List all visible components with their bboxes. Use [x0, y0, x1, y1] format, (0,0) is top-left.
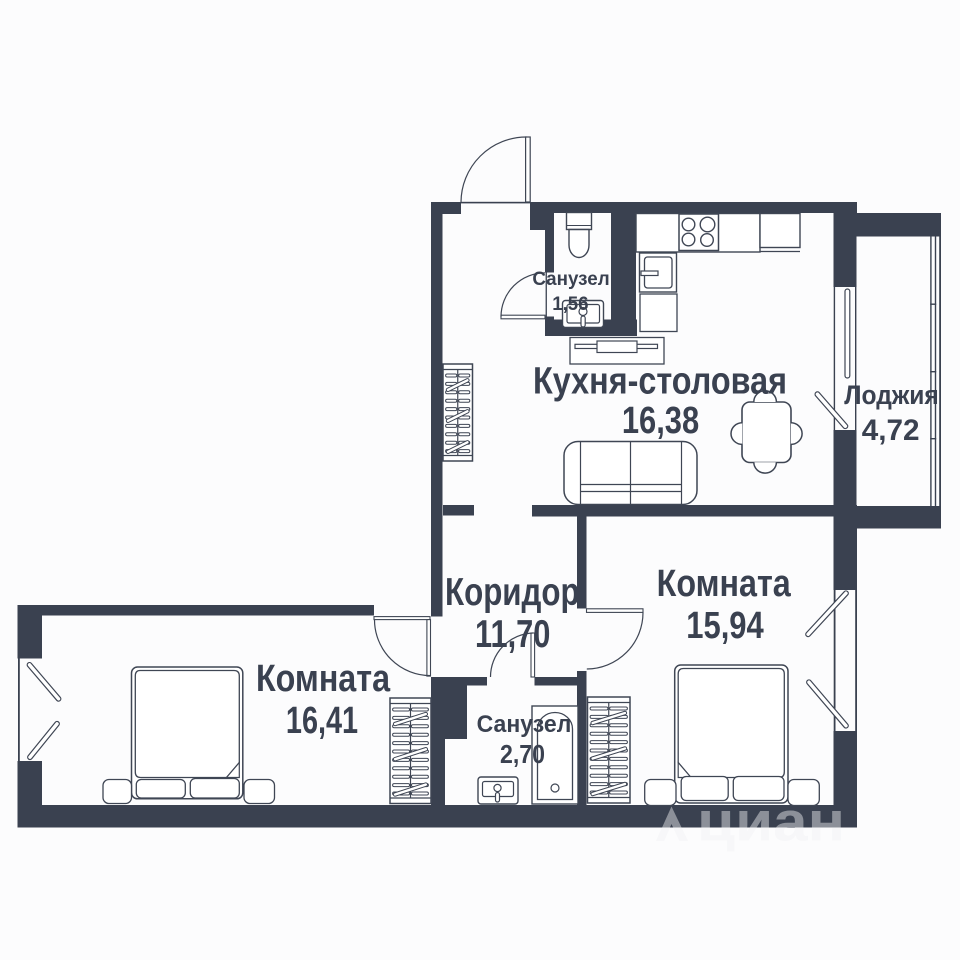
svg-text:Комната: Комната [256, 658, 391, 700]
svg-text:Коридор: Коридор [445, 571, 580, 614]
svg-text:Санузел: Санузел [532, 269, 609, 290]
svg-text:1,56: 1,56 [552, 294, 588, 315]
svg-text:Кухня-столовая: Кухня-столовая [533, 361, 787, 403]
svg-text:11,70: 11,70 [475, 613, 550, 656]
svg-text:4,72: 4,72 [862, 414, 920, 447]
svg-text:15,94: 15,94 [686, 605, 764, 647]
svg-text:циан: циан [697, 790, 845, 853]
svg-text:16,38: 16,38 [622, 400, 699, 442]
svg-text:Санузел: Санузел [477, 711, 572, 738]
svg-text:2,70: 2,70 [500, 739, 545, 769]
svg-text:Лоджия: Лоджия [844, 380, 939, 410]
svg-text:16,41: 16,41 [286, 700, 358, 742]
svg-text:Комната: Комната [657, 563, 792, 605]
